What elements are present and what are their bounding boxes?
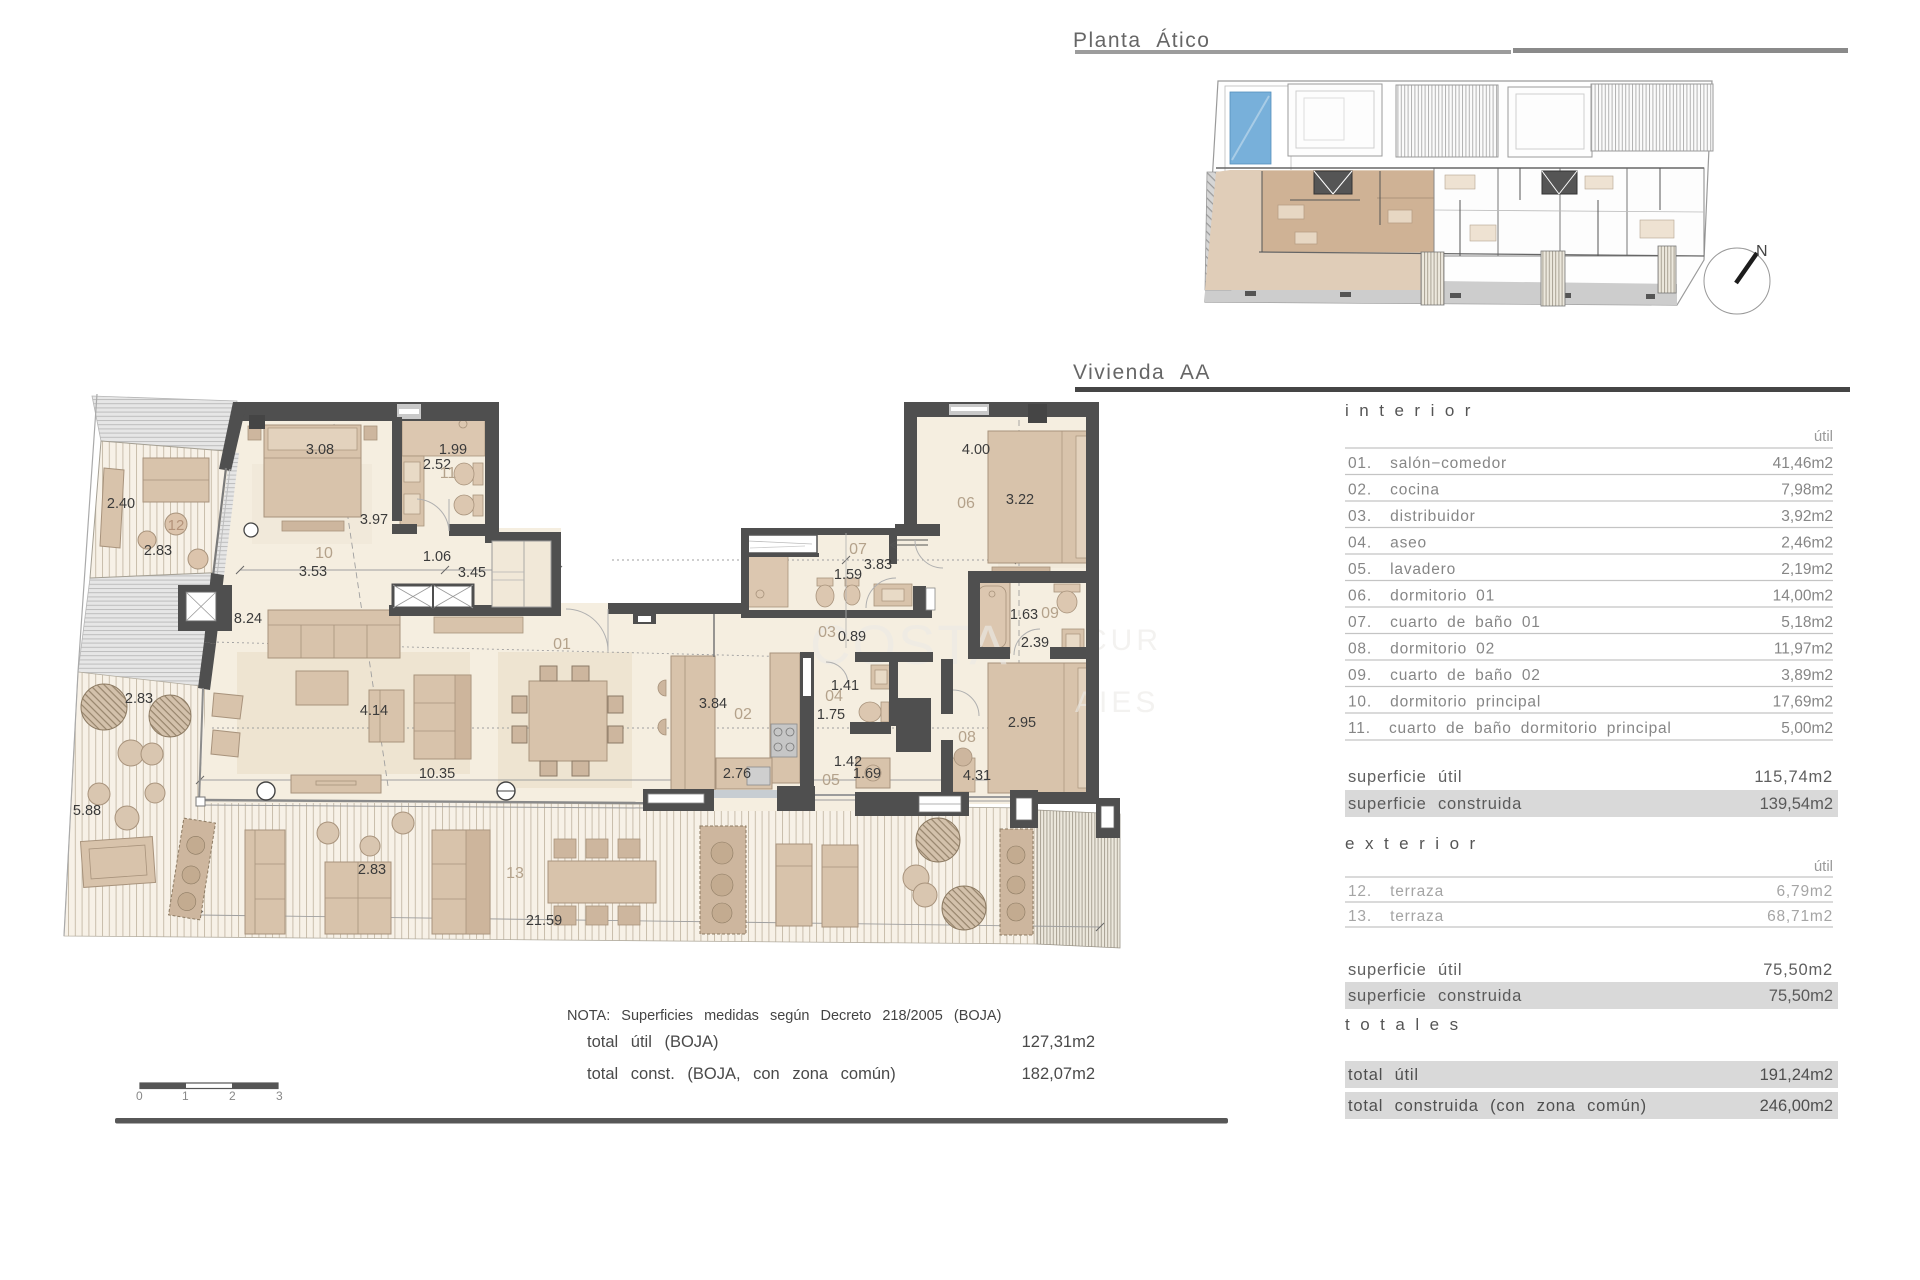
svg-text:11. cuarto de baño dormitorio: 11. cuarto de baño dormitorio principal (1348, 720, 1672, 737)
svg-text:05: 05 (822, 772, 840, 789)
svg-text:12: 12 (168, 517, 185, 534)
svg-text:02. cocina: 02. cocina (1348, 482, 1440, 499)
svg-text:12. terraza: 12. terraza (1348, 883, 1444, 900)
svg-text:04: 04 (825, 688, 843, 705)
svg-text:3.08: 3.08 (306, 442, 334, 458)
svg-text:totales: totales (1345, 1015, 1469, 1034)
svg-text:2.83: 2.83 (144, 543, 172, 559)
svg-text:2.76: 2.76 (723, 766, 751, 782)
svg-text:2.40: 2.40 (107, 496, 135, 512)
svg-text:1: 1 (182, 1089, 189, 1103)
svg-text:182,07m2: 182,07m2 (1022, 1065, 1095, 1083)
svg-text:3.53: 3.53 (299, 564, 327, 580)
svg-text:1.06: 1.06 (423, 549, 451, 565)
svg-text:8.24: 8.24 (234, 611, 262, 627)
svg-text:09. cuarto de baño 02: 09. cuarto de baño 02 (1348, 667, 1541, 684)
svg-text:06: 06 (957, 495, 975, 512)
svg-text:41,46m2: 41,46m2 (1773, 455, 1833, 472)
svg-text:13: 13 (506, 865, 524, 882)
svg-text:06. dormitorio 01: 06. dormitorio 01 (1348, 588, 1495, 605)
svg-text:Planta Ático: Planta Ático (1073, 29, 1210, 52)
svg-text:03. distribuidor: 03. distribuidor (1348, 508, 1476, 525)
svg-text:2.83: 2.83 (125, 691, 153, 707)
svg-text:17,69m2: 17,69m2 (1773, 694, 1833, 711)
svg-text:246,00m2: 246,00m2 (1760, 1097, 1833, 1115)
svg-text:superficie útil: superficie útil (1348, 961, 1462, 979)
svg-text:1.59: 1.59 (834, 567, 862, 583)
svg-text:NOTA: Superficies medidas s: NOTA: Superficies medidas según Decreto … (567, 1008, 1001, 1024)
svg-text:139,54m2: 139,54m2 (1760, 795, 1833, 813)
svg-text:3.97: 3.97 (360, 512, 388, 528)
svg-text:2.83: 2.83 (358, 862, 386, 878)
svg-text:2.39: 2.39 (1021, 635, 1049, 651)
svg-text:total construida (con zona com: total construida (con zona común) (1348, 1097, 1647, 1115)
svg-text:08. dormitorio 02: 08. dormitorio 02 (1348, 641, 1495, 658)
svg-text:11,97m2: 11,97m2 (1774, 641, 1833, 658)
svg-text:7,98m2: 7,98m2 (1781, 482, 1833, 499)
svg-text:07: 07 (849, 541, 867, 558)
svg-text:115,74m2: 115,74m2 (1754, 768, 1833, 786)
svg-text:útil: útil (1814, 428, 1833, 445)
svg-text:3.45: 3.45 (458, 565, 486, 581)
svg-text:01: 01 (553, 636, 571, 653)
svg-text:10. dormitorio principal: 10. dormitorio principal (1348, 694, 1541, 711)
svg-text:08: 08 (958, 729, 976, 746)
svg-text:11: 11 (440, 465, 457, 482)
svg-text:1.75: 1.75 (817, 707, 845, 723)
svg-text:1.99: 1.99 (439, 442, 467, 458)
svg-text:07. cuarto de baño 01: 07. cuarto de baño 01 (1348, 614, 1541, 631)
svg-text:13. terraza: 13. terraza (1348, 908, 1444, 925)
svg-text:total útil: total útil (1348, 1066, 1419, 1084)
svg-text:09: 09 (1041, 605, 1059, 622)
svg-text:75,50m2: 75,50m2 (1763, 961, 1833, 979)
svg-text:3.83: 3.83 (864, 557, 892, 573)
svg-text:3: 3 (276, 1089, 283, 1103)
svg-text:total const. (BOJA, con zona c: total const. (BOJA, con zona común) (587, 1065, 896, 1083)
svg-text:1.69: 1.69 (853, 766, 881, 782)
svg-text:21.59: 21.59 (526, 913, 562, 929)
svg-text:5,00m2: 5,00m2 (1781, 720, 1833, 737)
svg-text:6,79m2: 6,79m2 (1777, 883, 1834, 900)
svg-text:1.63: 1.63 (1010, 607, 1038, 623)
svg-text:2: 2 (229, 1089, 236, 1103)
svg-text:2,46m2: 2,46m2 (1781, 535, 1833, 552)
svg-text:5.88: 5.88 (73, 803, 101, 819)
svg-text:superficie útil: superficie útil (1348, 768, 1462, 786)
svg-text:superficie construida: superficie construida (1348, 795, 1522, 813)
svg-text:10: 10 (315, 545, 333, 562)
svg-text:03: 03 (818, 624, 836, 641)
svg-text:05. lavadero: 05. lavadero (1348, 561, 1456, 578)
svg-text:191,24m2: 191,24m2 (1760, 1066, 1833, 1084)
svg-text:Vivienda AA: Vivienda AA (1073, 361, 1211, 384)
svg-text:3.22: 3.22 (1006, 492, 1034, 508)
svg-text:3,92m2: 3,92m2 (1781, 508, 1833, 525)
svg-text:14,00m2: 14,00m2 (1773, 588, 1833, 605)
svg-text:útil: útil (1814, 858, 1833, 875)
svg-text:4.31: 4.31 (963, 768, 991, 784)
svg-text:3,89m2: 3,89m2 (1781, 667, 1833, 684)
svg-text:2.95: 2.95 (1008, 715, 1036, 731)
svg-text:4.14: 4.14 (360, 703, 388, 719)
svg-text:68,71m2: 68,71m2 (1767, 908, 1833, 925)
svg-text:N: N (1756, 243, 1768, 260)
svg-text:04. aseo: 04. aseo (1348, 535, 1427, 552)
svg-text:total útil (BOJA): total útil (BOJA) (587, 1033, 719, 1051)
svg-text:5,18m2: 5,18m2 (1781, 614, 1833, 631)
svg-text:interior: interior (1345, 401, 1481, 420)
svg-text:3.84: 3.84 (699, 696, 727, 712)
svg-text:75,50m2: 75,50m2 (1769, 987, 1833, 1005)
svg-text:2,19m2: 2,19m2 (1781, 561, 1833, 578)
svg-text:02: 02 (734, 706, 752, 723)
svg-text:4.00: 4.00 (962, 442, 990, 458)
svg-text:superficie construida: superficie construida (1348, 987, 1522, 1005)
svg-text:01. salón−comedor: 01. salón−comedor (1348, 455, 1507, 472)
svg-text:10.35: 10.35 (419, 766, 455, 782)
svg-text:0: 0 (136, 1089, 143, 1103)
svg-text:exterior: exterior (1345, 834, 1486, 853)
svg-text:0.89: 0.89 (838, 629, 866, 645)
svg-text:127,31m2: 127,31m2 (1022, 1033, 1095, 1051)
